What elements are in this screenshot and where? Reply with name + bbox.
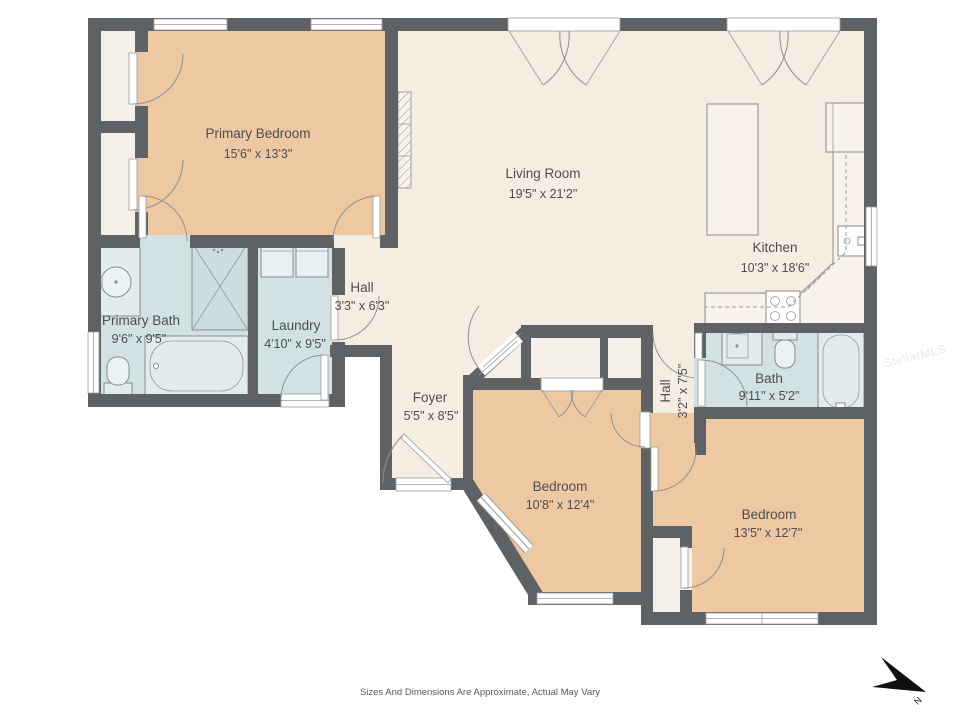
- door-leaf: [651, 447, 658, 491]
- closet-opening: [541, 378, 603, 391]
- door-leaf: [640, 412, 650, 448]
- room-label-primary-bedroom: Primary Bedroom: [205, 126, 310, 141]
- room-label-foyer: Foyer: [413, 390, 448, 405]
- builtin-hatched-feature: [398, 92, 411, 188]
- wall-primary-closet-divider: [101, 121, 135, 133]
- wall-bath-laundry-divider: [248, 241, 258, 401]
- door-gap: [140, 235, 190, 248]
- door-leaf: [321, 355, 328, 400]
- bath-tub: [818, 329, 864, 413]
- room-label-primary-bath: Primary Bath: [102, 313, 180, 328]
- room-label-living-room: Living Room: [505, 166, 580, 181]
- wall-bath-bottom: [694, 407, 869, 419]
- toilet-bowl: [107, 357, 129, 385]
- room-dims-bath: 9'11" x 5'2": [739, 389, 800, 403]
- door-leaf: [698, 360, 705, 406]
- shower-head-dot: [213, 249, 215, 251]
- north-label: N: [912, 695, 924, 707]
- refrigerator: [826, 103, 867, 152]
- door-leaf: [373, 196, 380, 238]
- bath-sink-drain: [735, 344, 738, 347]
- room-dims-primary-bedroom: 15'6" x 13'3": [224, 147, 293, 161]
- wall-kitchen-bottom: [694, 323, 877, 333]
- kitchen-island: [707, 104, 758, 235]
- room-label-hall-bedroom: Hall: [658, 379, 673, 402]
- room-label-laundry: Laundry: [272, 318, 321, 333]
- room-label-bedroom-front: Bedroom: [533, 479, 588, 494]
- washer: [261, 244, 293, 277]
- room-label-kitchen: Kitchen: [752, 240, 797, 255]
- disclaimer-text: Sizes And Dimensions Are Approximate, Ac…: [360, 687, 600, 698]
- door-leaf: [681, 547, 688, 588]
- wall-living-west: [385, 18, 398, 248]
- room-dims-primary-bath: 9'6" x 9'5": [112, 332, 167, 346]
- compass: N: [872, 657, 926, 707]
- wall-foyer-left: [380, 345, 392, 490]
- french-door-opening: [508, 18, 620, 31]
- room-dims-laundry: 4'10" x 9'5": [264, 337, 326, 351]
- watermark: StellarMLS: [882, 342, 947, 371]
- room-dims-bedroom-corner: 13'5" x 12'7": [734, 526, 803, 540]
- wall-bedroom-front-left: [463, 375, 473, 484]
- room-dims-hall-bedroom: 3'2" x 7'5": [676, 364, 690, 419]
- shower-head-dot: [221, 249, 223, 251]
- door-leaf: [129, 159, 137, 210]
- wall-closet-top: [521, 325, 653, 338]
- sink-drain: [114, 280, 117, 283]
- living-room-builtin: [398, 92, 411, 188]
- floor-plan-page: Primary Bedroom 15'6" x 13'3" Living Roo…: [0, 0, 960, 720]
- room-dims-hall: 3'3" x 6'3": [335, 299, 390, 313]
- bath-toilet-bowl: [775, 340, 795, 368]
- dryer: [296, 244, 328, 277]
- door-leaf: [129, 53, 137, 104]
- north-arrow-icon: [872, 657, 926, 692]
- tub-faucet: [154, 364, 159, 369]
- floor-plan-drawing: Primary Bedroom 15'6" x 13'3" Living Roo…: [0, 0, 960, 720]
- door-gap: [653, 443, 695, 455]
- room-dims-bedroom-front: 10'8" x 12'4": [526, 498, 595, 512]
- room-label-hall: Hall: [350, 280, 373, 295]
- room-dims-living-room: 19'5" x 21'2": [509, 187, 578, 201]
- wall-closet2-top: [641, 526, 692, 538]
- wall-exterior-right: [864, 18, 877, 625]
- french-door-opening: [727, 18, 840, 31]
- shower-head-dot: [217, 251, 219, 253]
- door-leaf: [139, 196, 146, 238]
- room-dims-foyer: 5'5" x 8'5": [404, 409, 459, 423]
- room-dims-kitchen: 10'3" x 18'6": [741, 261, 810, 275]
- room-label-bath: Bath: [755, 371, 783, 386]
- room-label-bedroom-corner: Bedroom: [742, 507, 797, 522]
